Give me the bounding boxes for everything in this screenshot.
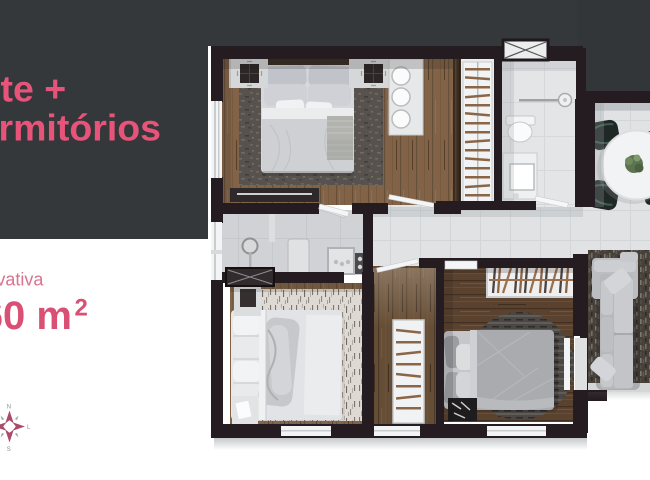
svg-text:vativa: vativa bbox=[0, 270, 44, 290]
svg-text:rmitórios: rmitórios bbox=[0, 107, 161, 149]
svg-text:60 m: 60 m bbox=[0, 294, 72, 338]
svg-text:N: N bbox=[7, 405, 11, 411]
svg-text:S: S bbox=[7, 447, 11, 453]
svg-text:2: 2 bbox=[75, 295, 88, 322]
svg-text:te +: te + bbox=[1, 68, 67, 110]
